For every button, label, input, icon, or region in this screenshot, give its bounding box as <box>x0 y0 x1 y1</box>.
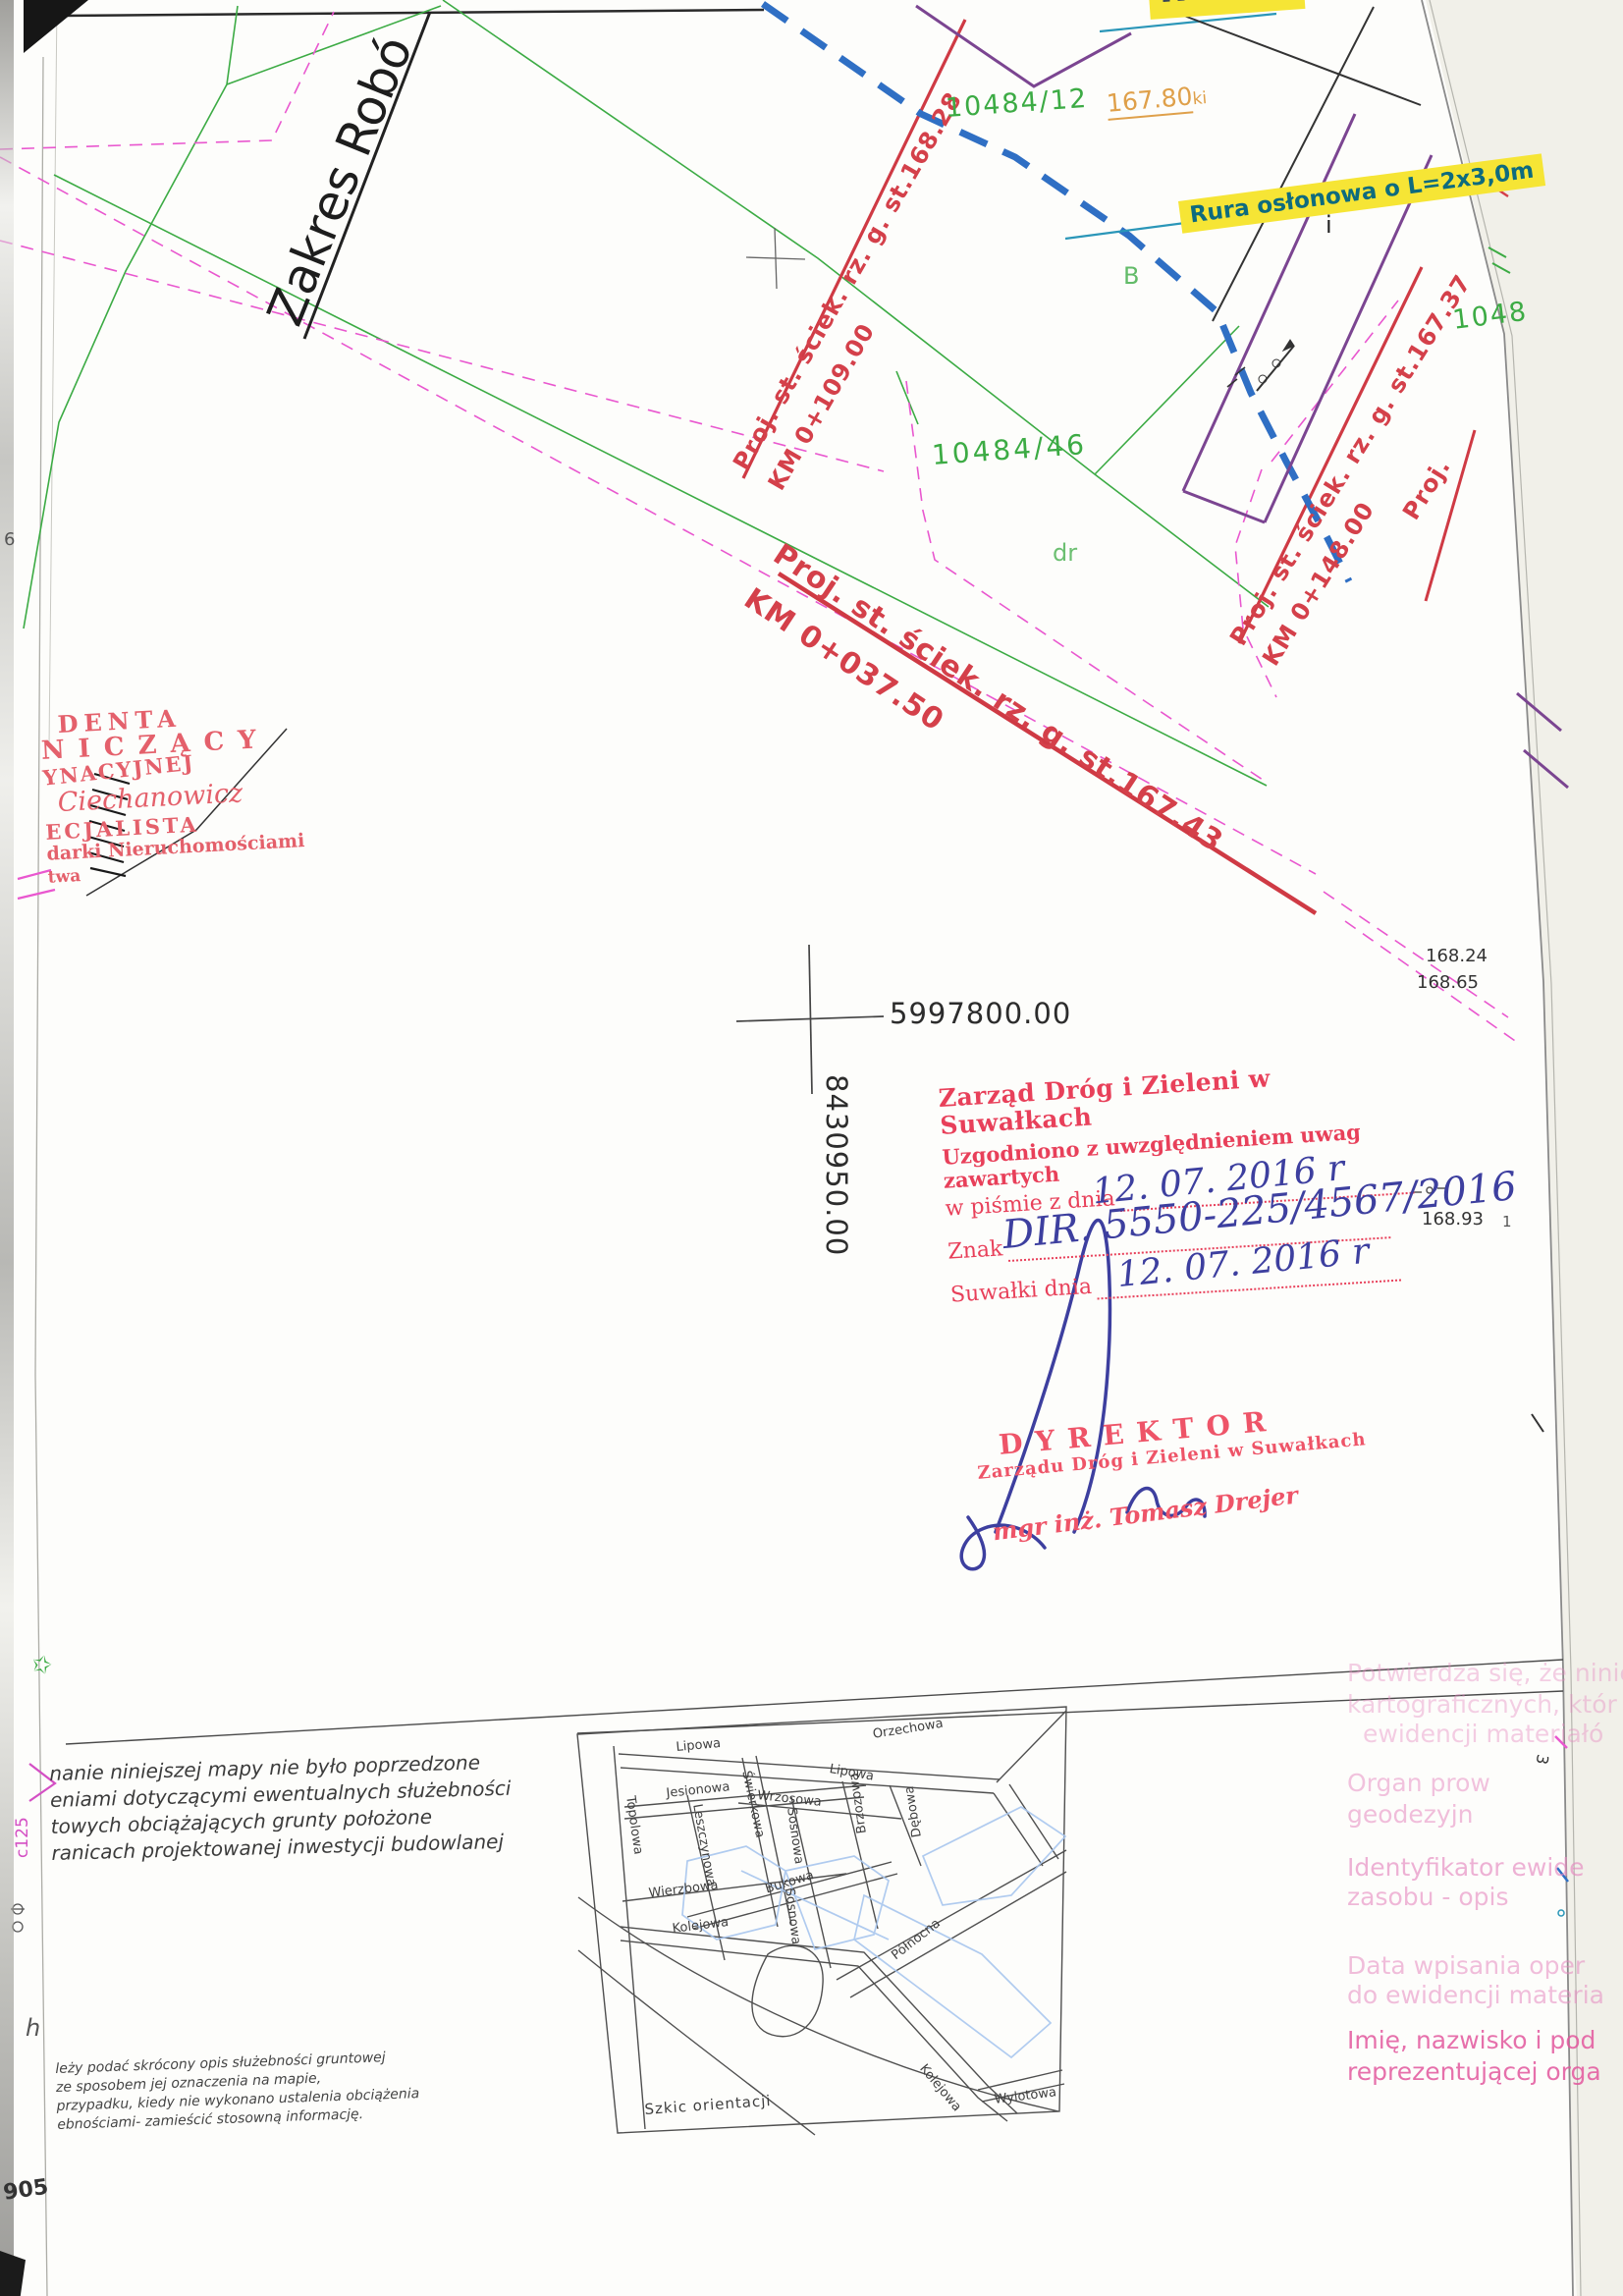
register-line: Potwierdza się, że ninie <box>1347 1660 1623 1687</box>
left-partial-stamp: DENTA NICZĄCY YNACYJNEJ Ciechanowicz ECJ… <box>39 699 306 887</box>
point-letter-i: i <box>1325 212 1332 239</box>
disclaimer-note: nanie niniejszej mapy nie było poprzedzo… <box>49 1749 513 1867</box>
margin-letter-h: h <box>26 2015 40 2042</box>
scan-left-edge-strip <box>0 0 14 2296</box>
register-line: zasobu - opis <box>1347 1884 1509 1911</box>
land-use-code: dr <box>1053 540 1077 567</box>
margin-code-c125: c125 <box>14 1817 32 1858</box>
register-line: Imię, nazwisko i pod <box>1347 2027 1596 2054</box>
elevation-top: 167.80ki <box>1106 82 1208 118</box>
scanned-map-sheet: Zakres Robó Proj. st. ściek. rz. g. st.1… <box>0 0 1623 2296</box>
elevation-right-upper: 168.24 <box>1426 947 1488 966</box>
approval-field2-label: Znak <box>947 1236 1003 1264</box>
elevation-right-lower: 168.65 <box>1417 973 1479 993</box>
register-line: Data wpisania oper <box>1347 1952 1585 1980</box>
approval-stamp: Zarząd Dróg i Zieleni w Suwałkach Uzgodn… <box>938 1057 1423 1328</box>
margin-digit-6: 6 <box>4 530 15 550</box>
register-line: Identyfikator ewide <box>1347 1854 1585 1882</box>
point-letter-b: B <box>1123 263 1139 290</box>
register-line: ewidencji materiałó <box>1363 1721 1603 1748</box>
elevation-top-suffix: ki <box>1192 88 1208 109</box>
scan-corner-wedge <box>24 0 88 53</box>
cut-label-text-smudge <box>1163 0 1280 2</box>
footnote: leży podać skrócony opis służebności gru… <box>55 2048 420 2135</box>
grid-easting-label: 8430950.00 <box>821 1074 852 1256</box>
register-line: do ewidencji materia <box>1347 1982 1604 2009</box>
register-line: kartograficznych, któr <box>1347 1691 1617 1719</box>
grid-northing-label: 5997800.00 <box>890 998 1071 1029</box>
register-line: reprezentującej orga <box>1347 2058 1601 2086</box>
register-line: geodezyjn <box>1347 1801 1474 1829</box>
elevation-right-bottom-suffix: 1 <box>1502 1214 1512 1230</box>
register-line: Organ prow <box>1347 1770 1490 1797</box>
